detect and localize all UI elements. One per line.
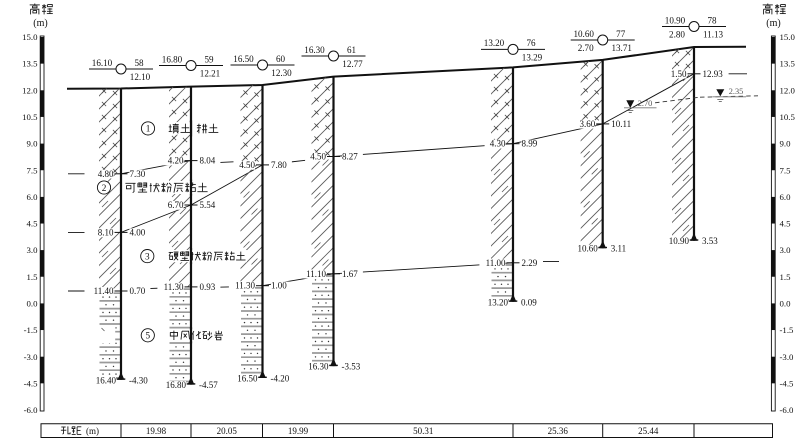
svg-text:4.20: 4.20	[168, 156, 184, 166]
svg-text:11.00: 11.00	[486, 258, 506, 268]
svg-text:-4.20: -4.20	[271, 374, 290, 384]
svg-text:10.90: 10.90	[669, 236, 690, 246]
svg-text:-1.5: -1.5	[24, 325, 39, 335]
svg-text:4.50: 4.50	[310, 152, 326, 162]
svg-text:16.10: 16.10	[92, 58, 113, 68]
svg-text:2.80: 2.80	[669, 30, 685, 40]
svg-text:5: 5	[146, 331, 151, 341]
svg-text:2.35: 2.35	[729, 87, 744, 96]
svg-text:3.0: 3.0	[27, 245, 39, 255]
svg-text:(m): (m)	[86, 426, 99, 436]
svg-text:13.20: 13.20	[488, 297, 509, 307]
svg-text:10.60: 10.60	[577, 244, 598, 254]
svg-text:9.0: 9.0	[27, 139, 39, 149]
svg-text:13.71: 13.71	[611, 43, 631, 53]
svg-text:-4.5: -4.5	[24, 379, 39, 389]
svg-text:4.80: 4.80	[98, 169, 114, 179]
svg-text:13.29: 13.29	[522, 52, 543, 62]
svg-text:8.99: 8.99	[522, 139, 538, 149]
svg-text:12.10: 12.10	[130, 72, 151, 82]
svg-text:13.5: 13.5	[22, 59, 38, 69]
svg-text:4.5: 4.5	[780, 219, 792, 229]
svg-text:7.5: 7.5	[27, 165, 39, 175]
svg-text:6.0: 6.0	[27, 192, 39, 202]
svg-text:16.30: 16.30	[304, 45, 325, 55]
svg-text:7.30: 7.30	[130, 169, 146, 179]
svg-text:3.11: 3.11	[611, 244, 626, 254]
svg-text:-4.30: -4.30	[129, 375, 148, 385]
svg-text:(m): (m)	[33, 18, 47, 29]
svg-text:6.70: 6.70	[168, 200, 184, 210]
svg-text:-1.5: -1.5	[780, 325, 795, 335]
svg-text:76: 76	[526, 38, 536, 48]
svg-text:3.53: 3.53	[702, 236, 718, 246]
svg-text:5.54: 5.54	[200, 200, 216, 210]
svg-text:(m): (m)	[766, 18, 780, 29]
svg-text:2.29: 2.29	[522, 258, 538, 268]
svg-text:-3.0: -3.0	[24, 352, 39, 362]
svg-text:13.20: 13.20	[484, 38, 505, 48]
svg-text:16.80: 16.80	[166, 380, 187, 390]
svg-text:1.5: 1.5	[780, 272, 792, 282]
svg-text:10.60: 10.60	[573, 29, 594, 39]
svg-text:4.30: 4.30	[490, 139, 506, 149]
svg-text:2: 2	[102, 183, 107, 193]
svg-text:12.21: 12.21	[200, 69, 220, 79]
svg-text:10.5: 10.5	[780, 112, 796, 122]
svg-text:10.90: 10.90	[665, 15, 686, 25]
svg-text:78: 78	[707, 15, 717, 25]
svg-text:0.0: 0.0	[780, 299, 792, 309]
svg-text:12.30: 12.30	[271, 68, 292, 78]
svg-text:1.5: 1.5	[27, 272, 39, 282]
svg-text:16.50: 16.50	[237, 374, 258, 384]
svg-text:77: 77	[616, 29, 626, 39]
svg-text:-4.5: -4.5	[780, 379, 795, 389]
svg-text:6.0: 6.0	[780, 192, 792, 202]
svg-text:10.11: 10.11	[611, 119, 631, 129]
svg-text:11.30: 11.30	[235, 281, 255, 291]
svg-text:8.04: 8.04	[200, 156, 216, 166]
svg-text:8.27: 8.27	[342, 152, 358, 162]
svg-text:15.0: 15.0	[780, 32, 796, 42]
svg-text:16.40: 16.40	[96, 375, 117, 385]
svg-text:1.50: 1.50	[671, 69, 687, 79]
svg-text:-6.0: -6.0	[24, 405, 39, 415]
svg-text:10.5: 10.5	[22, 112, 38, 122]
svg-text:1.67: 1.67	[342, 269, 358, 279]
svg-text:11.30: 11.30	[164, 282, 184, 292]
svg-text:12.93: 12.93	[703, 69, 724, 79]
svg-text:-3.53: -3.53	[342, 362, 361, 372]
svg-text:2.70: 2.70	[578, 43, 594, 53]
svg-text:0.09: 0.09	[521, 297, 537, 307]
svg-text:16.50: 16.50	[233, 54, 254, 64]
svg-text:3: 3	[145, 251, 150, 261]
svg-text:12.0: 12.0	[22, 85, 38, 95]
svg-text:16.30: 16.30	[308, 362, 329, 372]
svg-text:12.77: 12.77	[342, 59, 363, 69]
svg-text:25.44: 25.44	[638, 426, 659, 436]
svg-text:12.0: 12.0	[780, 85, 796, 95]
svg-text:11.13: 11.13	[703, 30, 724, 40]
svg-text:20.05: 20.05	[217, 426, 238, 436]
svg-text:8.10: 8.10	[98, 227, 114, 237]
svg-text:7.5: 7.5	[780, 165, 792, 175]
svg-text:0.93: 0.93	[200, 282, 216, 292]
svg-text:3.60: 3.60	[579, 119, 595, 129]
svg-text:19.99: 19.99	[288, 426, 309, 436]
svg-text:0.70: 0.70	[130, 286, 146, 296]
svg-text:-6.0: -6.0	[780, 405, 795, 415]
svg-text:4.5: 4.5	[27, 219, 39, 229]
svg-text:0.0: 0.0	[27, 299, 39, 309]
svg-text:50.31: 50.31	[413, 426, 433, 436]
svg-text:61: 61	[347, 45, 356, 55]
svg-text:-4.57: -4.57	[199, 380, 218, 390]
svg-text:4.00: 4.00	[130, 227, 146, 237]
svg-text:25.36: 25.36	[548, 426, 569, 436]
svg-text:59: 59	[204, 54, 214, 64]
svg-text:11.40: 11.40	[94, 286, 114, 296]
svg-text:1.00: 1.00	[271, 281, 287, 291]
svg-text:19.98: 19.98	[146, 426, 167, 436]
svg-text:58: 58	[134, 58, 144, 68]
svg-text:3.0: 3.0	[780, 245, 792, 255]
svg-text:13.5: 13.5	[780, 59, 796, 69]
svg-text:2.70: 2.70	[638, 99, 653, 108]
svg-text:16.80: 16.80	[162, 54, 183, 64]
svg-text:9.0: 9.0	[780, 139, 792, 149]
svg-text:-3.0: -3.0	[780, 352, 795, 362]
svg-text:4.50: 4.50	[239, 160, 255, 170]
svg-text:60: 60	[276, 54, 286, 64]
svg-text:1: 1	[146, 124, 151, 134]
svg-text:7.80: 7.80	[271, 160, 287, 170]
svg-text:15.0: 15.0	[22, 32, 38, 42]
svg-text:11.10: 11.10	[306, 269, 326, 279]
